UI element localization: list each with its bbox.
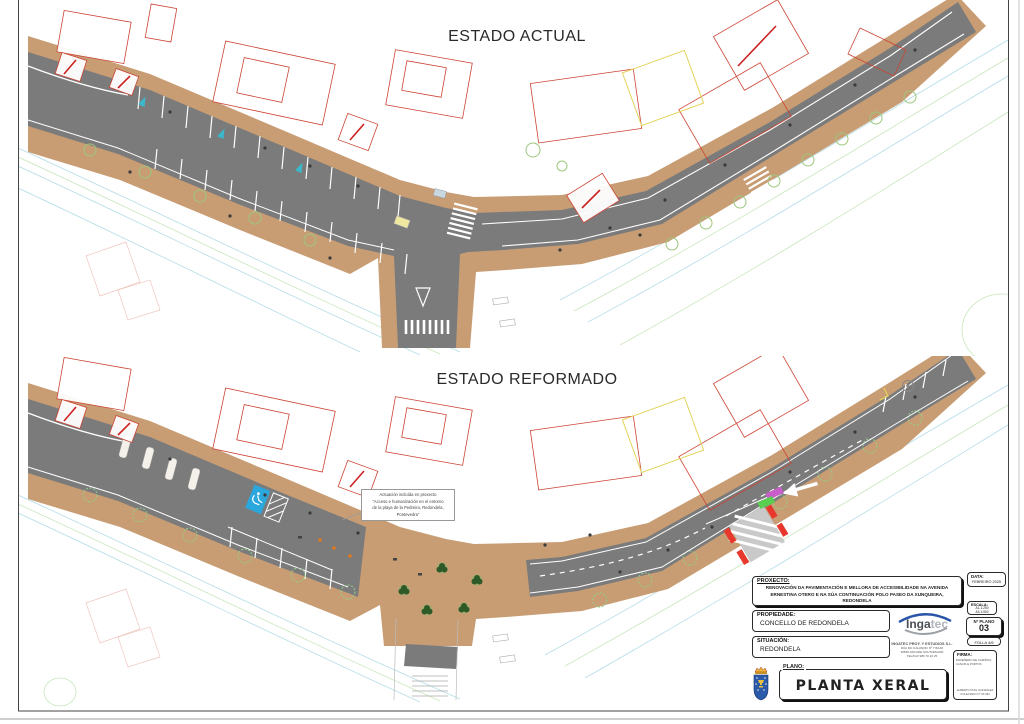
logo-text-light: tec xyxy=(931,617,949,631)
n-plano-box: Nº PLANO 03 xyxy=(966,617,1002,636)
ingatec-logo: Ingatec xyxy=(895,610,955,638)
firma-label: FIRMA: xyxy=(957,652,972,657)
drawing-sheet: ESTADO ACTUAL ESTADO REFORMADO Actuación… xyxy=(0,0,1024,724)
escala-box: ESCALA: A1-1:250 A3-1:500 xyxy=(967,601,997,615)
n-plano-value: 03 xyxy=(967,624,1001,633)
propiedade-label: PROPIEDADE: xyxy=(757,612,795,618)
folla-value: FOLLA 4/6 xyxy=(968,640,1000,645)
proxecto-box: PROXECTO: RENOVACIÓN DA PAVIMENTACIÓN E … xyxy=(752,576,962,606)
company-addr3: TEL/FAX 986 70 10 25 xyxy=(890,654,954,658)
data-box: DATA: FEBREIRO 2025 xyxy=(967,572,1006,587)
data-label: DATA: xyxy=(971,574,984,579)
proxecto-label: PROXECTO: xyxy=(757,578,790,584)
firma-box: FIRMA: ENXEÑEIRO DE CAMIÑOS, CANAIS E PO… xyxy=(953,650,997,700)
annotation-line3: de la playa de la Pedreira, Redondela, P… xyxy=(363,505,453,518)
situacion-value: REDONDELA xyxy=(760,646,889,653)
proxecto-text: RENOVACIÓN DA PAVIMENTACIÓN E MELLORA DE… xyxy=(765,585,949,605)
situacion-box: SITUACIÓN: REDONDELA xyxy=(752,636,890,658)
redondela-crest xyxy=(750,666,772,702)
escala-a3: A3-1:500 xyxy=(968,611,996,615)
svg-text:Ingatec: Ingatec xyxy=(906,617,948,631)
plano-value: PLANTA XERAL xyxy=(780,678,946,694)
logo-text-dark: Inga xyxy=(906,617,931,631)
propiedade-value: CONCELLO DE REDONDELA xyxy=(760,620,889,627)
situacion-label: SITUACIÓN: xyxy=(757,638,789,644)
escala-label: ESCALA: xyxy=(971,603,988,607)
crest-crown xyxy=(755,667,767,672)
plano-box: PLANTA XERAL xyxy=(779,669,947,700)
title-estado-actual: ESTADO ACTUAL xyxy=(407,28,627,46)
estado-actual-plan xyxy=(18,0,1024,366)
company-address: INGATEC PROY. Y ESTUDIOS S.L. RÚA DO CAL… xyxy=(890,642,954,658)
firma-colexiado: COLEXIADO Nº 20.494 xyxy=(954,692,996,696)
title-estado-reformado: ESTADO REFORMADO xyxy=(417,371,637,389)
data-value: FEBREIRO 2025 xyxy=(968,580,1005,584)
project-annotation-note: Actuación incluída en proxecto “Acceso e… xyxy=(361,489,455,521)
folla-box: FOLLA 4/6 xyxy=(967,637,1001,646)
propiedade-box: PROPIEDADE: CONCELLO DE REDONDELA xyxy=(752,610,890,632)
firma-role2: CANAIS E PORTOS xyxy=(956,662,994,666)
plano-label: PLANO: xyxy=(781,664,806,670)
